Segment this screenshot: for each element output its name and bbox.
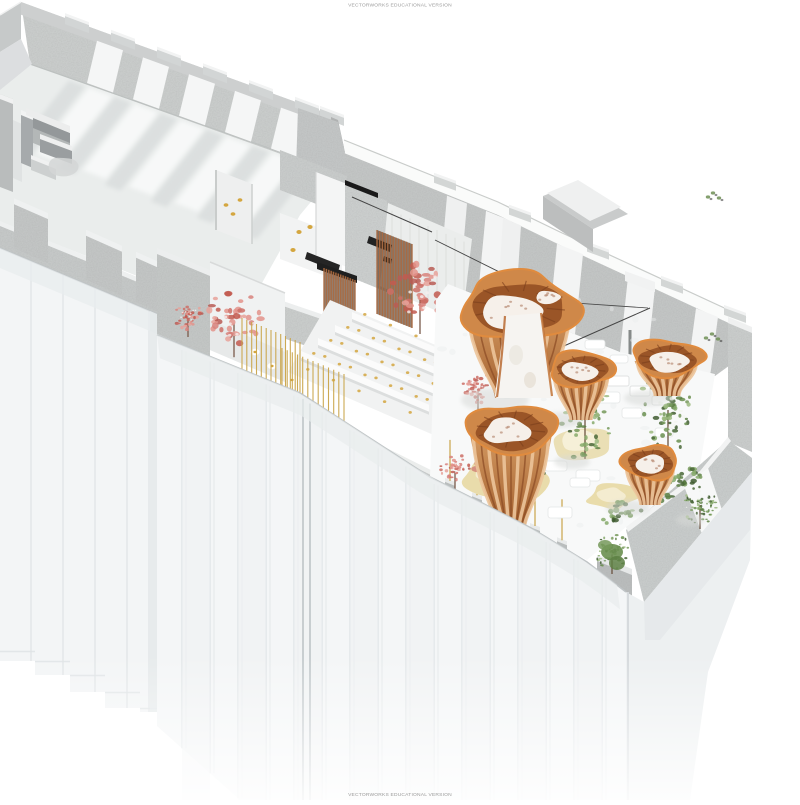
svg-text:VECTORWORKS EDUCATIONAL VERSIO: VECTORWORKS EDUCATIONAL VERSION: [348, 792, 452, 798]
svg-text:VECTORWORKS EDUCATIONAL VERSIO: VECTORWORKS EDUCATIONAL VERSION: [348, 3, 452, 9]
